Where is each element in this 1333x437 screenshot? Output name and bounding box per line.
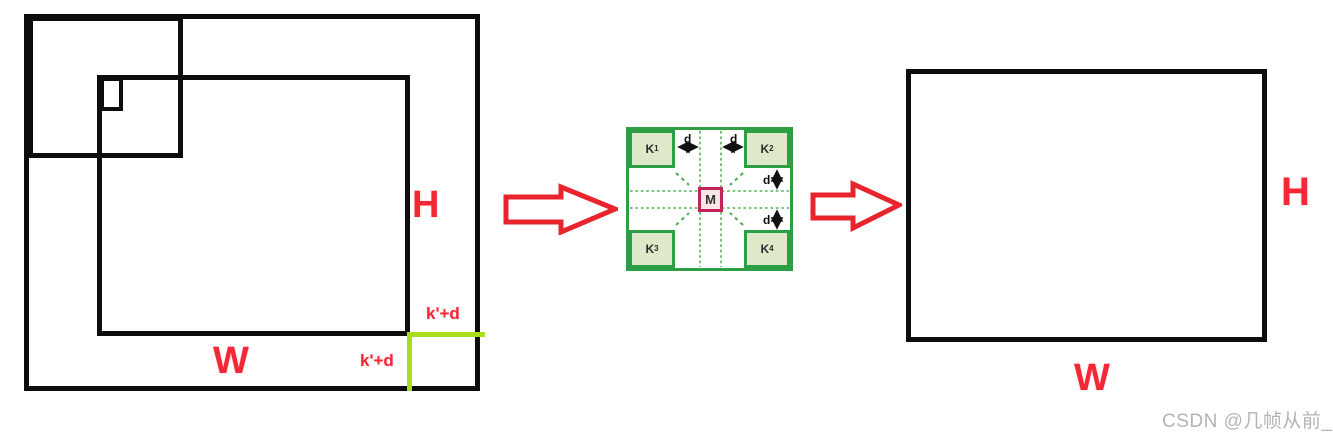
width-label-left: W	[213, 342, 249, 380]
green-margin-vertical	[407, 332, 412, 391]
margin-label-right: k'+d	[426, 305, 460, 322]
watermark: CSDN @几帧从前_	[1162, 406, 1332, 433]
flow-arrow-left-icon	[503, 181, 618, 235]
input-window-rect	[97, 75, 410, 336]
kernel-center-m-label: M	[705, 192, 716, 207]
spacing-label-d-3: d	[763, 174, 770, 186]
margin-label-bottom: k'+d	[360, 352, 394, 369]
flow-arrow-right-icon	[810, 180, 902, 232]
kernel-center-m: M	[698, 187, 723, 212]
spacing-label-d-4: d	[763, 214, 770, 226]
spacing-label-d-1: d	[684, 133, 691, 145]
output-rect	[906, 69, 1267, 342]
spacing-label-d-2: d	[730, 133, 737, 145]
green-margin-horizontal	[408, 332, 485, 337]
width-label-right: W	[1074, 359, 1110, 397]
figure-canvas: H W k'+d k'+d	[0, 0, 1333, 437]
kernel-diagram: K1 K2 K3 K4 M d d d d	[626, 127, 793, 271]
input-tiny-rect	[100, 77, 123, 111]
height-label-right: H	[1281, 172, 1310, 212]
height-label-left: H	[412, 186, 439, 224]
